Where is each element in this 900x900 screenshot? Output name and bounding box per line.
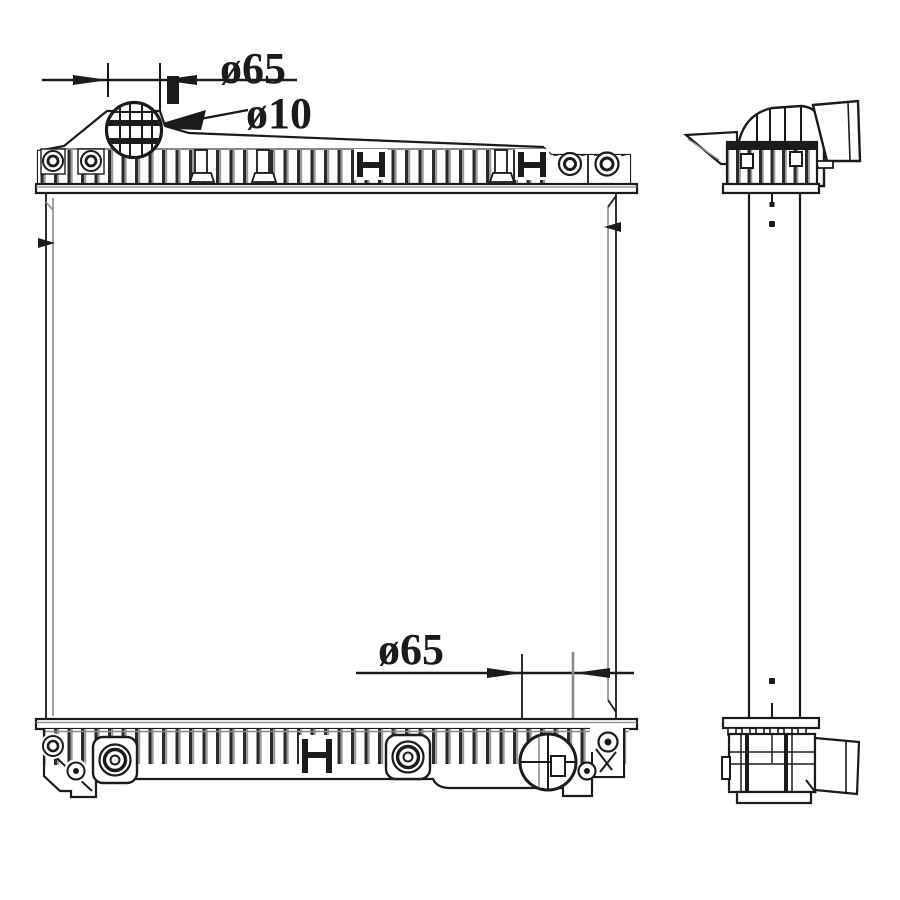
core-dot-top: [769, 221, 775, 227]
side-view: [686, 101, 860, 803]
top-tank-h-bracket: [515, 149, 549, 180]
drain-fitting-center: [386, 735, 430, 779]
filler-cap: [106, 103, 162, 159]
side-bottom-flange: [723, 718, 819, 728]
outlet-port: [520, 734, 576, 790]
bottom-tank: [36, 719, 637, 797]
dimension-label-outlet: ø65: [378, 625, 444, 674]
front-view: ø65 ø10: [36, 44, 638, 797]
top-tank-h-bracket: [354, 149, 388, 180]
leader-line: [200, 110, 248, 119]
side-bottom-skirt: [737, 792, 811, 803]
dimension-arrow: [487, 668, 522, 678]
dimension-arrow: [574, 668, 610, 678]
stub-end: [770, 202, 775, 207]
side-core: [749, 193, 800, 718]
top-tank: [36, 103, 638, 194]
core-width-arrow-right: [604, 222, 621, 232]
top-tank-flange: [36, 184, 637, 193]
side-top-tank: [686, 101, 860, 193]
side-tank-body: [727, 142, 817, 186]
dimension-label-overflow: ø10: [246, 89, 312, 138]
core-right-chamfer-bottom: [608, 700, 616, 712]
dimension-arrow: [73, 75, 108, 85]
side-bottom-body: [729, 734, 815, 792]
radiator-technical-drawing: ø65 ø10: [0, 0, 900, 900]
outlet-pipe: [806, 738, 859, 794]
side-bottom-tank: [722, 718, 859, 803]
core-left-chamfer: [46, 202, 53, 210]
core-right-chamfer-top: [608, 196, 616, 207]
drain-fitting-left: [93, 737, 137, 783]
overflow-pipe-stub: [167, 76, 179, 104]
bottom-tank-h-bracket: [299, 735, 335, 777]
radiator-core: [38, 193, 621, 719]
bottom-tank-flange: [36, 719, 637, 729]
core-dot-bottom: [769, 678, 775, 684]
side-top-flange: [723, 184, 819, 193]
side-bottom-tab: [722, 757, 730, 779]
dimension-label-top: ø65: [220, 44, 286, 93]
